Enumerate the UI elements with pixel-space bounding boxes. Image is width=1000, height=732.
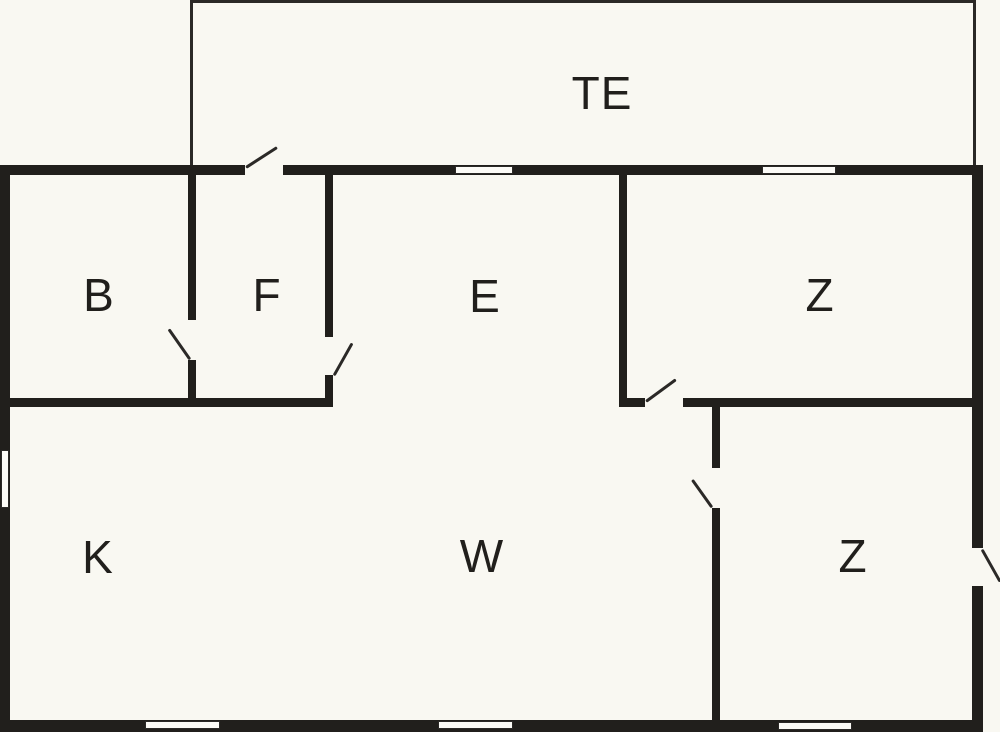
top-wall-left-of-terrace-door <box>0 165 245 175</box>
window-bottom-1 <box>145 721 220 729</box>
room-label-w: W <box>460 533 504 579</box>
b-door-swing <box>168 328 191 360</box>
exterior-door-swing <box>981 548 1000 581</box>
w-z-divider-upper <box>712 407 720 468</box>
room-label-z-top: Z <box>805 272 834 318</box>
e-z-divider <box>619 175 627 407</box>
window-top-2 <box>762 166 836 174</box>
right-exterior-wall-lower <box>972 586 983 732</box>
w-z-divider-lower <box>712 508 720 720</box>
window-top-1 <box>455 166 513 174</box>
room-label-f: F <box>252 272 281 318</box>
top-wall-right-of-terrace-door <box>283 165 982 175</box>
z-top-bottom-wall-stub <box>619 398 645 407</box>
room-label-te: TE <box>572 70 633 116</box>
z-top-door-swing <box>645 378 677 402</box>
room-label-k: K <box>82 534 114 580</box>
terrace-top-edge <box>190 0 976 3</box>
z-bottom-door-swing <box>691 478 713 508</box>
b-f-divider-stub <box>188 360 196 398</box>
terrace-left-edge <box>190 0 193 165</box>
right-exterior-wall-upper <box>972 165 983 548</box>
room-label-e: E <box>469 273 501 319</box>
b-f-divider-upper <box>188 175 196 320</box>
terrace-right-edge <box>973 0 976 165</box>
window-left <box>1 450 9 508</box>
terrace-door-swing <box>245 146 278 169</box>
f-e-divider-stub <box>325 375 333 398</box>
z-top-bottom-wall <box>683 398 972 407</box>
floor-plan: TEBFEZKWZ <box>0 0 1000 732</box>
window-bottom-2 <box>438 721 513 729</box>
b-f-bottom-wall <box>10 398 333 407</box>
f-door-swing <box>333 342 354 375</box>
room-label-b: B <box>83 272 115 318</box>
window-bottom-3 <box>778 722 852 730</box>
room-label-z-bottom: Z <box>838 533 867 579</box>
f-e-divider-upper <box>325 175 333 337</box>
left-exterior-wall <box>0 165 10 732</box>
